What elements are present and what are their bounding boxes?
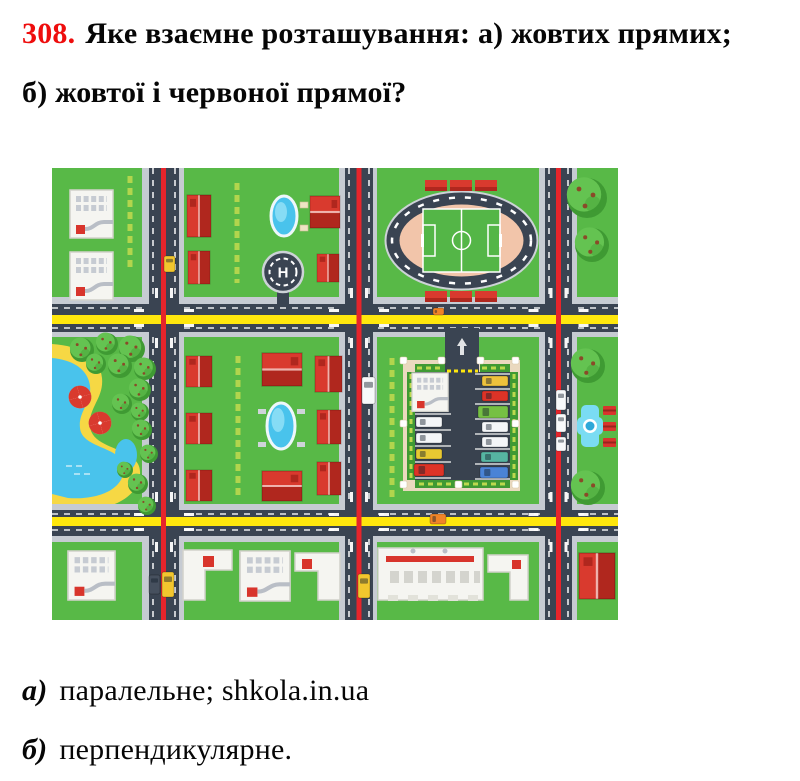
city-map-svg: H (52, 168, 618, 620)
soccer-field (421, 209, 502, 272)
answer-b-label: б) (22, 733, 47, 766)
problem-statement: 308.Яке взаємне розташування: а) жовтих … (22, 4, 762, 122)
red-line-middle (357, 168, 362, 620)
red-line-left (161, 168, 166, 620)
problem-text: Яке взаємне розташування: а) жовтих прям… (22, 17, 732, 109)
answer-b: б)перпендикулярне. (22, 733, 292, 767)
answer-a-text: паралельне; shkola.in.ua (59, 674, 369, 707)
helipad-letter: H (278, 265, 289, 282)
answer-a: а)паралельне; shkola.in.ua (22, 674, 369, 708)
stadium (386, 192, 538, 290)
park-benches (603, 406, 616, 447)
parking-office-building (412, 373, 448, 411)
textbook-page: { "problem": { "number": "308.", "number… (0, 0, 800, 781)
city-map-image: H (52, 168, 618, 620)
yellow-line-bottom (52, 517, 618, 526)
problem-number: 308. (22, 17, 75, 50)
answer-a-label: а) (22, 674, 47, 707)
long-building (378, 548, 483, 600)
yellow-line-top (52, 315, 618, 324)
answer-b-text: перпендикулярне. (59, 733, 292, 766)
